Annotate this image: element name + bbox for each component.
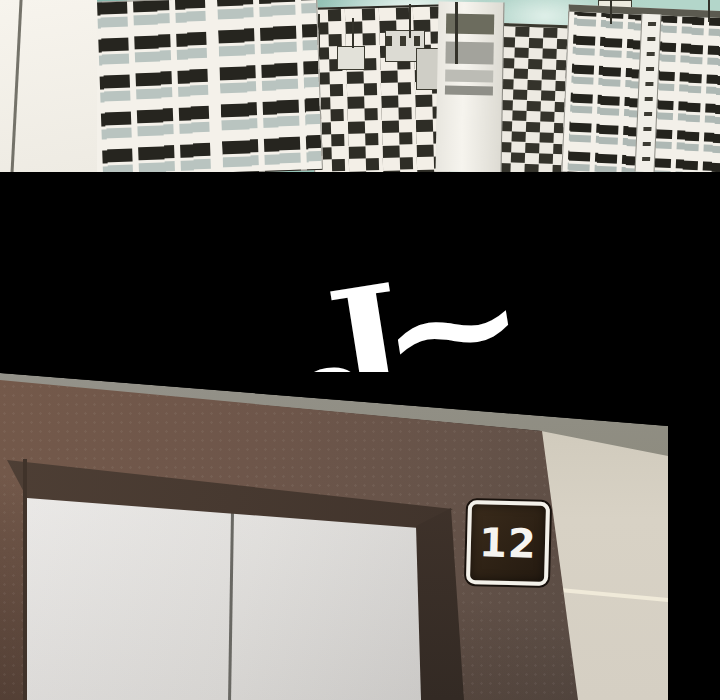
shaft-band xyxy=(445,70,493,83)
rooftop-structure xyxy=(337,46,365,70)
antenna xyxy=(409,4,411,38)
shaft-band xyxy=(445,42,493,65)
wall-corner-line xyxy=(10,0,22,172)
shaft-band xyxy=(445,86,493,96)
panel-elevator: 12 xyxy=(0,372,668,700)
antenna xyxy=(708,0,710,22)
webtoon-page: O J ~ 12 xyxy=(0,0,720,700)
building-blank-wall xyxy=(0,0,97,172)
door-frame-jamb-left xyxy=(23,459,27,700)
antenna xyxy=(352,18,354,48)
antenna xyxy=(610,0,612,24)
floor-number-sign: 12 xyxy=(466,500,550,586)
shaft-band xyxy=(446,14,494,35)
panel-cityscape xyxy=(0,0,720,172)
building-left-balconies xyxy=(83,0,323,172)
floor-number: 12 xyxy=(479,519,538,566)
building-elevator-shaft-column xyxy=(436,1,505,172)
antenna xyxy=(455,2,458,64)
